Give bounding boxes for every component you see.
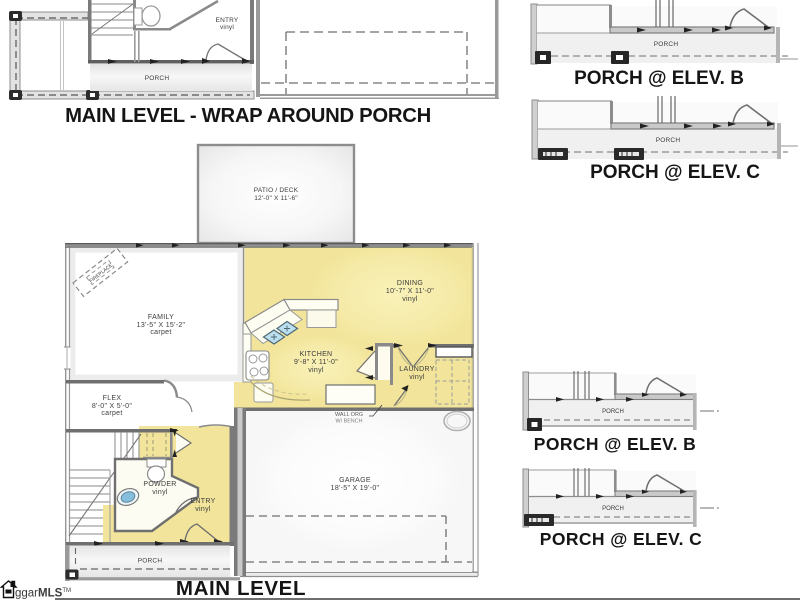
svg-text:ENTRY: ENTRY	[216, 17, 239, 24]
svg-text:MAIN LEVEL: MAIN LEVEL	[176, 577, 306, 600]
svg-text:18'-5" X 19'-0": 18'-5" X 19'-0"	[331, 485, 380, 492]
svg-text:PORCH @ ELEV. B: PORCH @ ELEV. B	[534, 434, 696, 454]
svg-text:vinyl: vinyl	[402, 296, 418, 303]
svg-text:FAMILY: FAMILY	[148, 314, 174, 321]
svg-text:PORCH: PORCH	[602, 506, 624, 512]
svg-text:MAIN LEVEL - WRAP AROUND PORCH: MAIN LEVEL - WRAP AROUND PORCH	[65, 105, 431, 127]
svg-text:PORCH: PORCH	[138, 558, 163, 565]
svg-text:vinyl: vinyl	[409, 374, 425, 381]
svg-text:PORCH: PORCH	[654, 41, 679, 48]
svg-text:PORCH: PORCH	[145, 75, 170, 82]
svg-text:KITCHEN: KITCHEN	[300, 351, 333, 358]
svg-text:PORCH @ ELEV. C: PORCH @ ELEV. C	[590, 162, 760, 183]
svg-text:vinyl: vinyl	[220, 24, 234, 31]
svg-text:PATIO / DECK: PATIO / DECK	[254, 187, 299, 194]
svg-text:POWDER: POWDER	[143, 481, 176, 488]
svg-text:FLEX: FLEX	[103, 395, 122, 402]
svg-text:vinyl: vinyl	[152, 489, 168, 496]
svg-text:PORCH: PORCH	[656, 137, 681, 144]
svg-text:vinyl: vinyl	[195, 506, 211, 513]
svg-text:13'-5" X 15'-2": 13'-5" X 15'-2"	[137, 322, 186, 329]
svg-text:ENTRY: ENTRY	[190, 498, 215, 505]
svg-text:carpet: carpet	[101, 410, 122, 417]
svg-text:vinyl: vinyl	[308, 367, 324, 374]
svg-text:9'-8" X 11'-0": 9'-8" X 11'-0"	[294, 359, 338, 366]
svg-text:GARAGE: GARAGE	[339, 477, 371, 484]
svg-text:DINING: DINING	[397, 280, 423, 287]
svg-text:12'-0" X 11'-6": 12'-0" X 11'-6"	[254, 195, 298, 202]
svg-text:8'-0" X 5'-0": 8'-0" X 5'-0"	[92, 403, 133, 410]
svg-text:10'-7" X 11'-0": 10'-7" X 11'-0"	[386, 288, 434, 295]
svg-text:LAUNDRY: LAUNDRY	[399, 366, 434, 373]
svg-text:PORCH @ ELEV. B: PORCH @ ELEV. B	[574, 68, 744, 89]
svg-text:carpet: carpet	[150, 329, 171, 336]
svg-text:PORCH: PORCH	[602, 409, 624, 415]
svg-text:PORCH @ ELEV. C: PORCH @ ELEV. C	[540, 529, 702, 549]
